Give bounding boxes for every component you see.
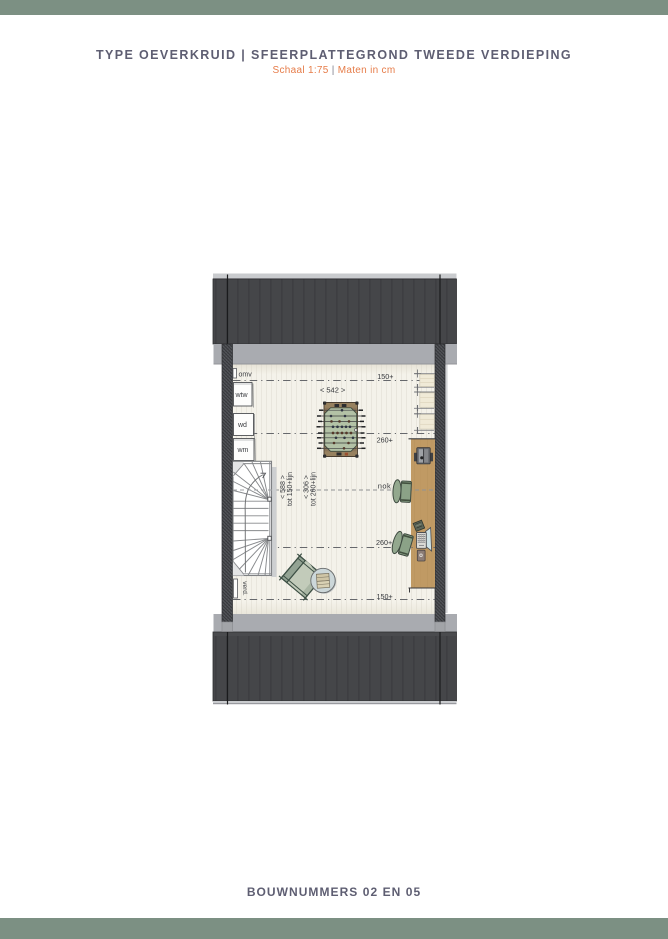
svg-text:tot 150+lijn: tot 150+lijn bbox=[287, 472, 294, 506]
svg-text:verd.: verd. bbox=[241, 581, 248, 596]
svg-text:wtw: wtw bbox=[235, 392, 249, 399]
svg-text:< 542 >: < 542 > bbox=[320, 385, 346, 394]
svg-text:< 588 >: < 588 > bbox=[280, 475, 287, 499]
svg-text:< 306 >: < 306 > bbox=[304, 475, 311, 499]
svg-text:150+: 150+ bbox=[377, 592, 393, 601]
svg-text:nok: nok bbox=[378, 482, 391, 491]
svg-text:omv: omv bbox=[239, 372, 253, 379]
svg-text:260+: 260+ bbox=[377, 435, 393, 444]
svg-text:150+: 150+ bbox=[377, 372, 393, 381]
svg-text:tot 260+lijn: tot 260+lijn bbox=[311, 472, 318, 506]
svg-text:260+: 260+ bbox=[376, 538, 392, 547]
svg-text:wm: wm bbox=[237, 447, 249, 454]
svg-text:wd: wd bbox=[237, 422, 247, 429]
